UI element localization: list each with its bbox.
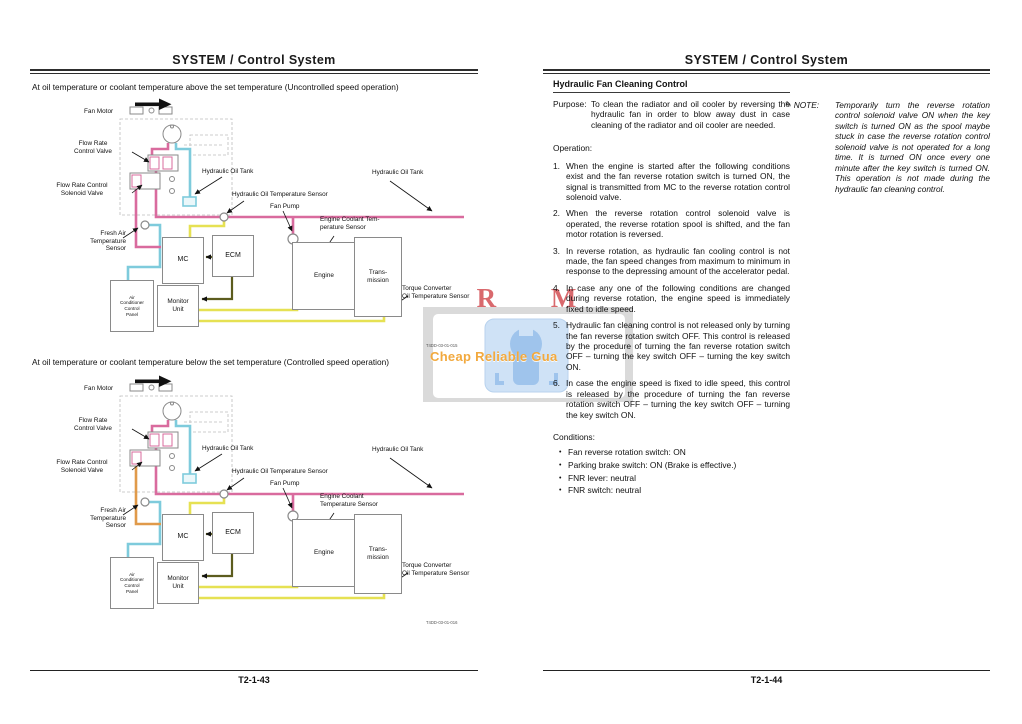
right-page-left-column: Purpose: To clean the radiator and oil c… xyxy=(553,99,790,498)
condition-item: FNR switch: neutral xyxy=(553,485,790,497)
bullet-icon xyxy=(559,485,568,497)
flow-rate-control-solenoid-valve-label: Flow Rate Control Solenoid Valve xyxy=(34,459,130,474)
transmission-box: Trans- mission xyxy=(354,237,402,317)
flow-control-valve-symbols xyxy=(130,432,178,471)
operation-label: Operation: xyxy=(553,143,790,153)
hydraulic-oil-tank-label: Hydraulic Oil Tank xyxy=(202,445,253,453)
fan-motor-symbol xyxy=(130,107,181,143)
operation-item-number: 3. xyxy=(553,246,566,277)
note-text: Temporarily turn the reverse rotation co… xyxy=(835,100,990,194)
condition-item: Parking brake switch: ON (Brake is effec… xyxy=(553,460,790,472)
operation-item: 2. When the reverse rotation control sol… xyxy=(553,208,790,239)
supply-line-pink xyxy=(152,143,464,234)
left-page-number: T2-1-43 xyxy=(30,675,478,685)
right-page-number: T2-1-44 xyxy=(543,675,990,685)
diagram-code: T4DD-03-01-016 xyxy=(426,620,457,625)
hydraulic-oil-tank-label-2: Hydraulic Oil Tank xyxy=(372,169,423,177)
note-block: ✎ NOTE: Temporarily turn the reverse rot… xyxy=(785,100,990,194)
flow-control-valve-symbols xyxy=(130,155,178,194)
engine-coolant-temperature-sensor-label: Engine Coolant Tem- perature Sensor xyxy=(320,216,380,231)
oil-tank-symbol xyxy=(183,474,196,483)
hydraulic-oil-tank-label: Hydraulic Oil Tank xyxy=(202,168,253,176)
left-footer-rule xyxy=(30,670,478,671)
purpose-label: Purpose: xyxy=(553,99,591,130)
left-header-rule xyxy=(30,69,478,74)
condition-text: Fan reverse rotation switch: ON xyxy=(568,447,686,459)
hydraulic-circuit-svg xyxy=(32,374,482,629)
monitor-unit-box: Monitor Unit xyxy=(157,562,199,604)
condition-text: FNR switch: neutral xyxy=(568,485,641,497)
conditions-label: Conditions: xyxy=(553,432,790,442)
hydraulic-circuit-svg xyxy=(32,97,482,352)
caption-uncontrolled: At oil temperature or coolant temperatur… xyxy=(32,82,478,92)
diagram-uncontrolled-speed: Fan Motor Flow Rate Control Valve Flow R… xyxy=(32,97,482,355)
operation-item-number: 5. xyxy=(553,320,566,372)
air-conditioner-control-panel-box: Air Conditioner Control Panel xyxy=(110,280,154,332)
operation-item-number: 1. xyxy=(553,161,566,203)
purpose-block: Purpose: To clean the radiator and oil c… xyxy=(553,99,790,130)
bullet-icon xyxy=(559,447,568,459)
conditions-list: Fan reverse rotation switch: ON Parking … xyxy=(553,447,790,497)
engine-coolant-temperature-sensor-label: Engine Coolant Temperature Sensor xyxy=(320,493,378,508)
note-head: ✎ NOTE: xyxy=(785,100,835,194)
left-page-title: SYSTEM / Control System xyxy=(30,53,478,67)
operation-item-number: 4. xyxy=(553,283,566,314)
fresh-air-temperature-sensor-label: Fresh Air Temperature Sensor xyxy=(60,507,126,530)
operation-item: 1. When the engine is started after the … xyxy=(553,161,790,203)
operation-item-text: When the engine is started after the fol… xyxy=(566,161,790,203)
flow-rate-control-valve-label: Flow Rate Control Valve xyxy=(56,140,130,155)
operation-item: 3. In reverse rotation, as hydraulic fan… xyxy=(553,246,790,277)
torque-converter-oil-temperature-sensor-label: Torque Converter Oil Temperature Sensor xyxy=(402,562,480,577)
fan-pump-label: Fan Pump xyxy=(270,480,299,488)
note-label: NOTE: xyxy=(794,100,819,194)
operation-item-text: When the reverse rotation control soleno… xyxy=(566,208,790,239)
operation-item-text: In reverse rotation, as hydraulic fan co… xyxy=(566,246,790,277)
fan-pump-label: Fan Pump xyxy=(270,203,299,211)
flow-rate-control-solenoid-valve-label: Flow Rate Control Solenoid Valve xyxy=(34,182,130,197)
operation-item-text: Hydraulic fan cleaning control is not re… xyxy=(566,320,790,372)
right-page-title: SYSTEM / Control System xyxy=(543,53,990,67)
section-title: Hydraulic Fan Cleaning Control xyxy=(553,79,790,93)
mc-box: MC xyxy=(162,514,204,561)
condition-text: Parking brake switch: ON (Brake is effec… xyxy=(568,460,736,472)
fresh-air-temperature-sensor-label: Fresh Air Temperature Sensor xyxy=(60,230,126,253)
monitor-unit-box: Monitor Unit xyxy=(157,285,199,327)
hydraulic-oil-temperature-sensor-label: Hydraulic Oil Temperature Sensor xyxy=(232,191,328,199)
hydraulic-oil-tank-label-2: Hydraulic Oil Tank xyxy=(372,446,423,454)
right-page-note-column: ✎ NOTE: Temporarily turn the reverse rot… xyxy=(785,100,990,194)
operation-item-text: In case any one of the following conditi… xyxy=(566,283,790,314)
fan-motor-label: Fan Motor xyxy=(84,108,113,116)
operation-list: 1. When the engine is started after the … xyxy=(553,161,790,420)
right-footer-rule xyxy=(543,670,990,671)
condition-item: FNR lever: neutral xyxy=(553,473,790,485)
transmission-box: Trans- mission xyxy=(354,514,402,594)
operation-item: 6. In case the engine speed is fixed to … xyxy=(553,378,790,420)
oil-tank-symbol xyxy=(183,197,196,206)
fan-motor-symbol xyxy=(130,384,181,420)
fan-motor-label: Fan Motor xyxy=(84,385,113,393)
flow-rate-control-valve-label: Flow Rate Control Valve xyxy=(56,417,130,432)
ecm-box: ECM xyxy=(212,512,254,554)
pencil-note-icon: ✎ xyxy=(785,100,792,194)
engine-box: Engine xyxy=(292,242,356,310)
ecm-box: ECM xyxy=(212,235,254,277)
caption-controlled: At oil temperature or coolant temperatur… xyxy=(32,357,478,367)
condition-item: Fan reverse rotation switch: ON xyxy=(553,447,790,459)
diagram-controlled-speed: Fan Motor Flow Rate Control Valve Flow R… xyxy=(32,374,482,632)
bullet-icon xyxy=(559,460,568,472)
operation-item: 4. In case any one of the following cond… xyxy=(553,283,790,314)
manual-spread: { "left_page": { "header": "SYSTEM / Con… xyxy=(0,0,1022,724)
right-header-rule xyxy=(543,69,990,74)
supply-line-pink xyxy=(152,420,464,511)
condition-text: FNR lever: neutral xyxy=(568,473,636,485)
diagram-code: T4DD-03-01-015 xyxy=(426,343,457,348)
hydraulic-oil-temperature-sensor-label: Hydraulic Oil Temperature Sensor xyxy=(232,468,328,476)
purpose-text: To clean the radiator and oil cooler by … xyxy=(591,99,790,130)
engine-box: Engine xyxy=(292,519,356,587)
operation-item-number: 2. xyxy=(553,208,566,239)
bullet-icon xyxy=(559,473,568,485)
operation-item: 5. Hydraulic fan cleaning control is not… xyxy=(553,320,790,372)
mc-box: MC xyxy=(162,237,204,284)
operation-item-number: 6. xyxy=(553,378,566,420)
operation-item-text: In case the engine speed is fixed to idl… xyxy=(566,378,790,420)
air-conditioner-control-panel-box: Air Conditioner Control Panel xyxy=(110,557,154,609)
